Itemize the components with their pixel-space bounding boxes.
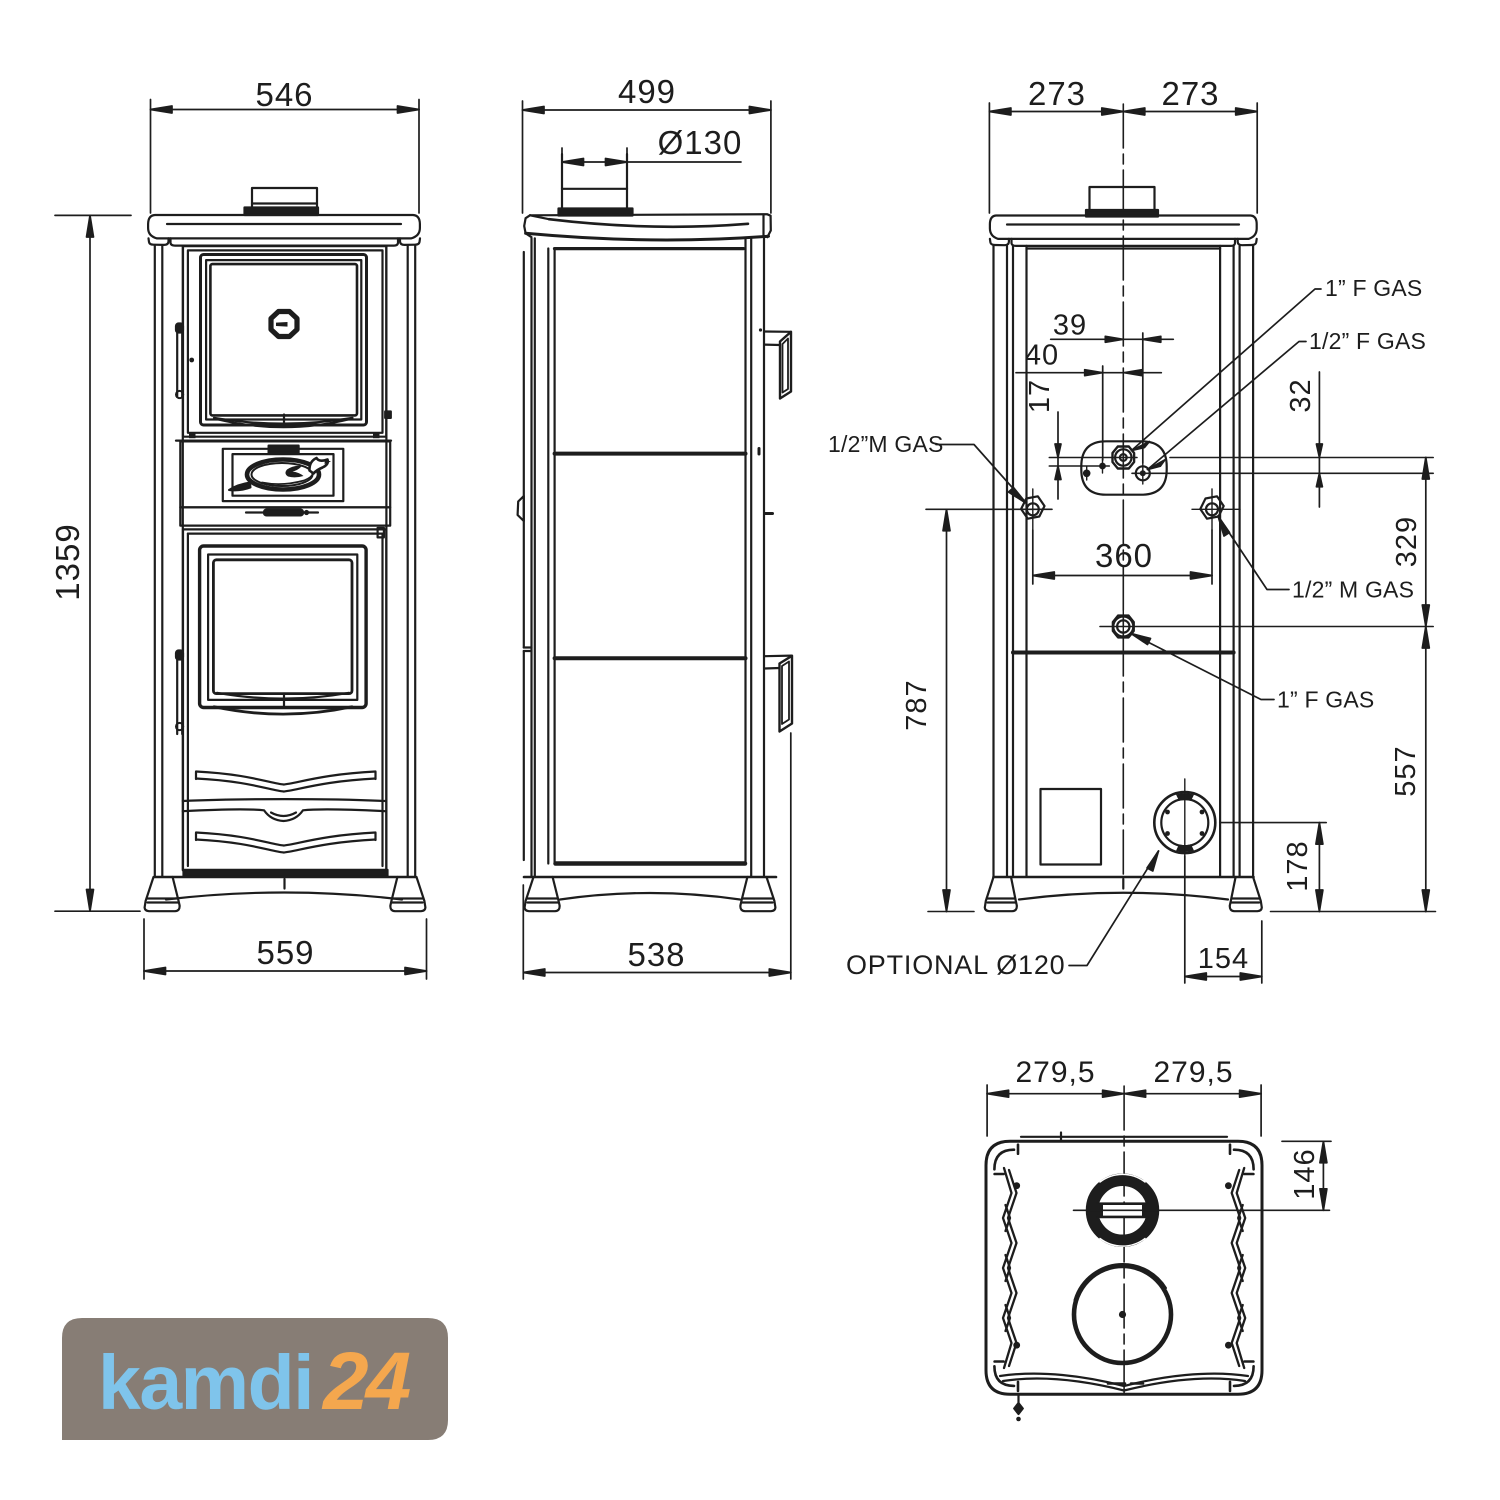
svg-text:279,5: 279,5: [1015, 1056, 1095, 1089]
svg-text:154: 154: [1198, 943, 1249, 975]
svg-text:1” F GAS: 1” F GAS: [1325, 275, 1422, 301]
svg-text:OPTIONAL Ø120: OPTIONAL Ø120: [846, 950, 1065, 980]
svg-text:538: 538: [627, 936, 685, 973]
svg-text:279,5: 279,5: [1153, 1056, 1233, 1089]
svg-text:499: 499: [618, 73, 676, 110]
svg-text:1/2” M GAS: 1/2” M GAS: [1292, 577, 1414, 603]
svg-text:557: 557: [1390, 745, 1422, 796]
svg-text:1/2”M GAS: 1/2”M GAS: [828, 431, 944, 457]
svg-text:146: 146: [1289, 1148, 1321, 1199]
svg-text:360: 360: [1095, 537, 1153, 574]
svg-text:kamdi: kamdi: [98, 1340, 313, 1426]
svg-text:546: 546: [255, 76, 313, 113]
svg-text:559: 559: [256, 934, 314, 971]
svg-text:178: 178: [1282, 840, 1314, 891]
svg-text:273: 273: [1161, 75, 1219, 112]
svg-text:273: 273: [1028, 75, 1086, 112]
svg-text:40: 40: [1025, 340, 1059, 372]
svg-text:1” F GAS: 1” F GAS: [1277, 687, 1374, 713]
svg-text:32: 32: [1285, 378, 1317, 412]
svg-text:1359: 1359: [49, 523, 86, 600]
svg-text:1/2” F GAS: 1/2” F GAS: [1309, 328, 1426, 354]
svg-text:787: 787: [901, 679, 933, 730]
svg-text:39: 39: [1053, 310, 1087, 342]
svg-text:Ø130: Ø130: [658, 124, 743, 161]
svg-text:17: 17: [1024, 379, 1056, 413]
svg-text:24: 24: [321, 1336, 411, 1427]
svg-text:329: 329: [1391, 516, 1423, 567]
